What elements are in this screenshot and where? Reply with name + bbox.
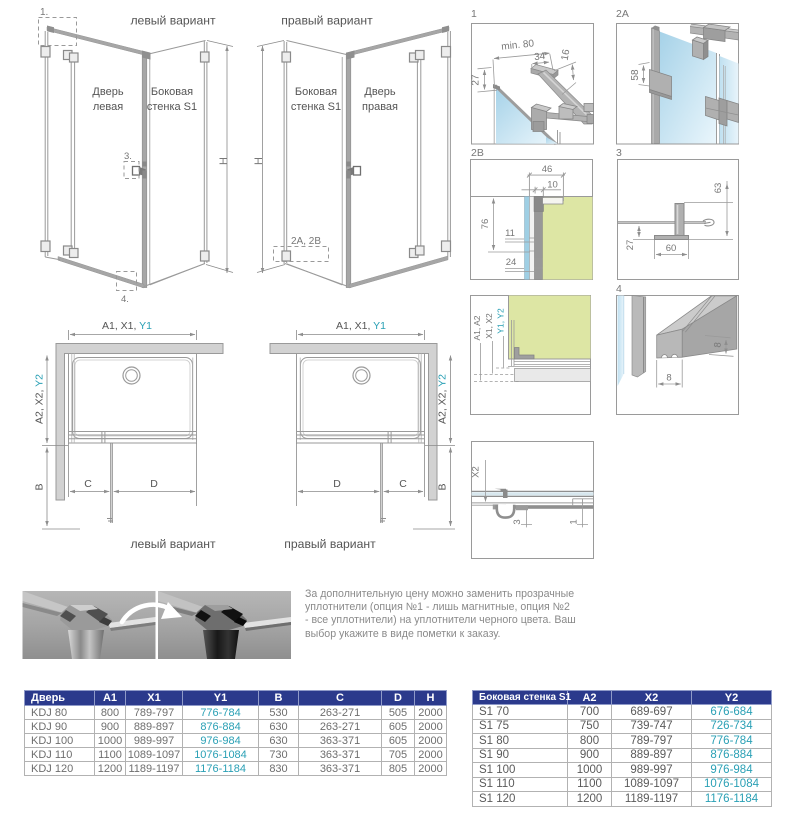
svg-text:правый вариант: правый вариант xyxy=(281,14,373,28)
svg-text:X1, X2: X1, X2 xyxy=(484,313,494,339)
svg-text:3.: 3. xyxy=(124,151,132,162)
svg-text:76: 76 xyxy=(480,219,491,230)
svg-text:3: 3 xyxy=(616,147,622,159)
svg-text:Боковая: Боковая xyxy=(295,86,337,98)
svg-text:2А, 2В: 2А, 2В xyxy=(291,236,321,247)
svg-text:63: 63 xyxy=(713,183,724,194)
svg-text:60: 60 xyxy=(666,243,677,254)
svg-text:2B: 2B xyxy=(471,147,484,159)
svg-text:левый вариант: левый вариант xyxy=(130,14,216,28)
svg-text:стенка S1: стенка S1 xyxy=(147,101,197,113)
svg-text:правая: правая xyxy=(362,101,398,113)
svg-text:46: 46 xyxy=(542,164,553,175)
svg-text:B: B xyxy=(437,483,449,490)
svg-text:C: C xyxy=(399,478,407,490)
svg-text:2A: 2A xyxy=(616,8,629,20)
svg-text:4.: 4. xyxy=(121,294,129,305)
svg-text:D: D xyxy=(150,478,158,490)
svg-text:3: 3 xyxy=(512,519,523,524)
svg-text:H: H xyxy=(253,157,265,165)
svg-text:X2: X2 xyxy=(471,466,482,478)
svg-text:8: 8 xyxy=(666,373,671,384)
svg-text:D: D xyxy=(333,478,341,490)
svg-text:27: 27 xyxy=(471,74,482,86)
svg-text:правый вариант: правый вариант xyxy=(284,537,376,551)
svg-text:27: 27 xyxy=(625,240,636,251)
svg-text:Y1, Y2: Y1, Y2 xyxy=(496,308,506,334)
svg-text:34: 34 xyxy=(534,51,547,63)
svg-text:A2, X2, Y2: A2, X2, Y2 xyxy=(34,374,46,424)
svg-text:1: 1 xyxy=(471,8,477,20)
svg-text:левая: левая xyxy=(93,101,123,113)
svg-text:Дверь: Дверь xyxy=(364,86,395,98)
svg-text:8: 8 xyxy=(712,342,723,348)
svg-text:A1, X1, Y1: A1, X1, Y1 xyxy=(102,320,152,332)
svg-text:A1, A2: A1, A2 xyxy=(472,315,482,340)
svg-text:H: H xyxy=(218,157,230,165)
svg-text:1.: 1. xyxy=(40,7,48,18)
svg-text:11: 11 xyxy=(505,228,515,239)
svg-text:1: 1 xyxy=(569,519,580,524)
svg-text:Боковая: Боковая xyxy=(151,86,193,98)
svg-text:A1, X1, Y1: A1, X1, Y1 xyxy=(336,320,386,332)
svg-text:24: 24 xyxy=(506,257,517,268)
svg-text:10: 10 xyxy=(547,180,558,191)
svg-text:C: C xyxy=(84,478,92,490)
svg-text:Дверь: Дверь xyxy=(92,86,123,98)
svg-text:A2, X2, Y2: A2, X2, Y2 xyxy=(437,374,449,424)
svg-text:4: 4 xyxy=(616,283,622,295)
svg-text:стенка S1: стенка S1 xyxy=(291,101,341,113)
svg-text:левый вариант: левый вариант xyxy=(130,537,216,551)
svg-text:B: B xyxy=(34,483,46,490)
svg-text:58: 58 xyxy=(630,69,641,81)
